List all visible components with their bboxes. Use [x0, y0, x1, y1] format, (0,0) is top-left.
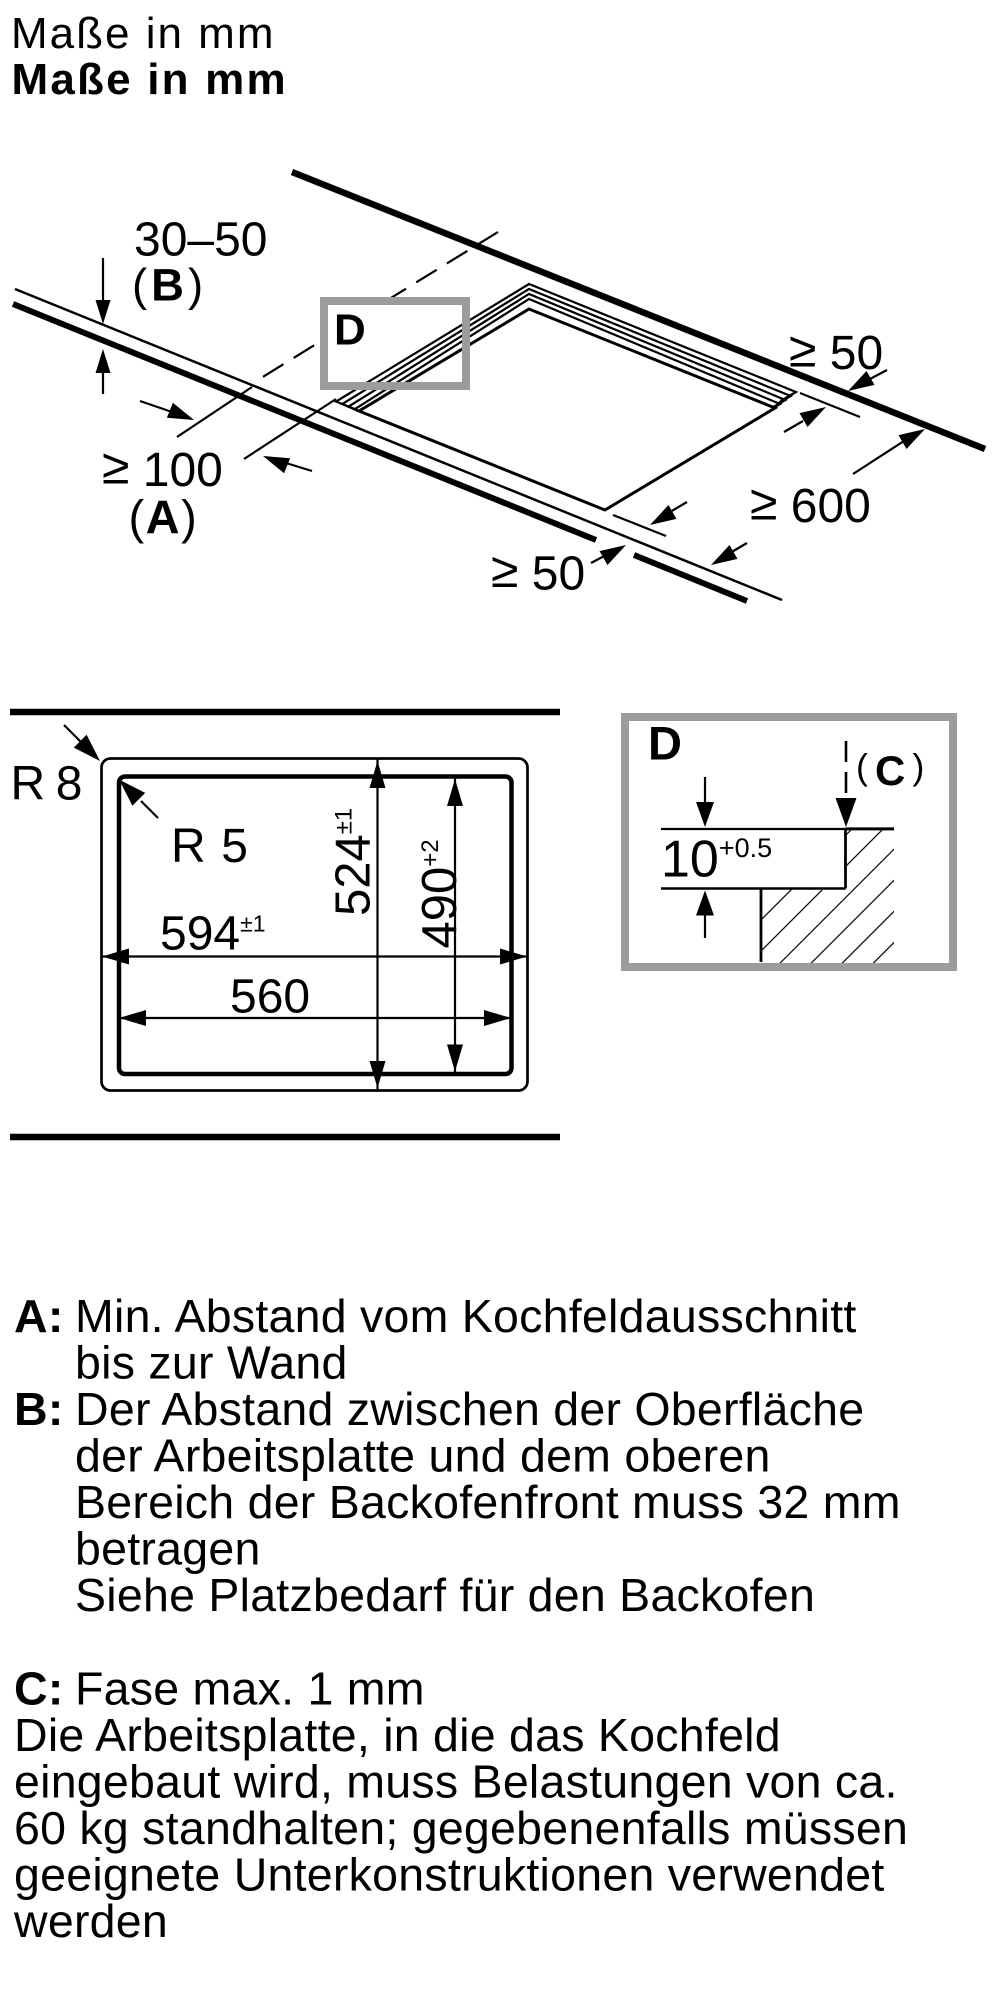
svg-text:Siehe Platzbedarf für den Back: Siehe Platzbedarf für den Backofen [75, 1569, 815, 1621]
svg-text:≥ 50: ≥ 50 [789, 322, 883, 381]
svg-text:(C): (C) [856, 746, 931, 794]
svg-text:R 8: R 8 [11, 758, 82, 811]
svg-text:Maße in mm: Maße in mm [11, 9, 275, 58]
svg-text:D: D [334, 306, 366, 355]
svg-text:geeignete Unterkonstruktionen: geeignete Unterkonstruktionen verwendet [14, 1849, 885, 1901]
svg-text:(B): (B) [132, 260, 207, 311]
svg-text:Fase max. 1 mm: Fase max. 1 mm [75, 1663, 425, 1715]
svg-text:bis zur Wand: bis zur Wand [75, 1337, 348, 1389]
svg-text:R 5: R 5 [171, 820, 249, 873]
svg-text:C:: C: [14, 1663, 64, 1715]
svg-text:werden: werden [13, 1895, 168, 1947]
svg-text:560: 560 [230, 970, 310, 1023]
svg-text:betragen: betragen [75, 1523, 261, 1575]
svg-text:(A): (A) [129, 491, 199, 544]
svg-text:Maße in mm: Maße in mm [12, 55, 288, 104]
svg-text:Bereich der Backofenfront muss: Bereich der Backofenfront muss 32 mm [75, 1476, 901, 1528]
svg-text:B:: B: [14, 1383, 64, 1435]
svg-text:≥ 600: ≥ 600 [750, 475, 871, 534]
svg-text:60 kg standhalten; gegebenenfa: 60 kg standhalten; gegebenenfalls müssen [14, 1802, 908, 1854]
svg-text:A:: A: [14, 1290, 64, 1342]
svg-text:der Arbeitsplatte und dem ober: der Arbeitsplatte und dem oberen [75, 1430, 771, 1482]
svg-text:D: D [648, 717, 682, 770]
svg-text:eingebaut wird, muss Belastung: eingebaut wird, muss Belastungen von ca. [14, 1756, 898, 1808]
svg-text:Min. Abstand vom Kochfeldaussc: Min. Abstand vom Kochfeldausschnitt [75, 1290, 857, 1342]
svg-text:≥ 50: ≥ 50 [491, 542, 585, 601]
svg-text:≥ 100: ≥ 100 [102, 439, 223, 498]
svg-text:Der Abstand zwischen der Oberf: Der Abstand zwischen der Oberfläche [75, 1383, 864, 1435]
svg-text:Die Arbeitsplatte, in die das: Die Arbeitsplatte, in die das Kochfeld [14, 1709, 781, 1761]
